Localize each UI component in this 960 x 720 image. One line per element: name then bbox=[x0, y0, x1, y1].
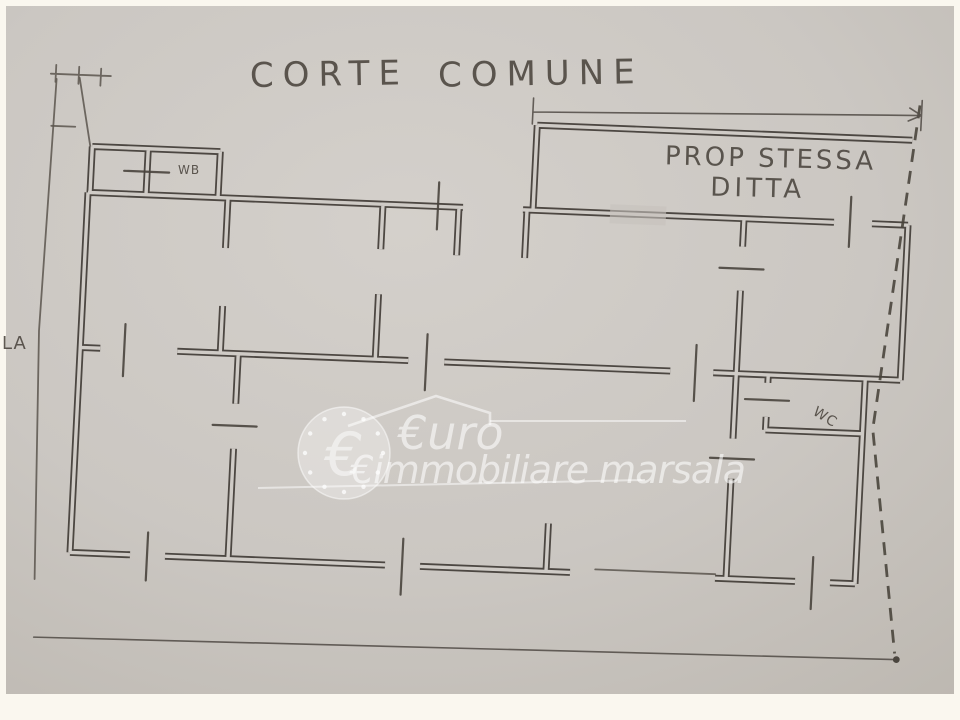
plan-title: CORTE COMUNE bbox=[250, 49, 644, 99]
room-label-wb: WB bbox=[178, 163, 200, 177]
title-word-corte: CORTE bbox=[250, 53, 410, 96]
photo-glare-smudge bbox=[610, 204, 667, 225]
title-word-comune: COMUNE bbox=[438, 52, 644, 96]
floorplan-svg: CORTE COMUNE PROP STESSA DITTA WB WC LA bbox=[0, 0, 960, 720]
floorplan-photo: CORTE COMUNE PROP STESSA DITTA WB WC LA bbox=[0, 0, 960, 720]
left-edge-label: LA bbox=[2, 333, 27, 354]
watermark-line2: €immobiliare marsala bbox=[349, 448, 745, 492]
annex-label-line2: DITTA bbox=[710, 172, 806, 204]
annex-label-line1: PROP STESSA bbox=[665, 141, 877, 177]
